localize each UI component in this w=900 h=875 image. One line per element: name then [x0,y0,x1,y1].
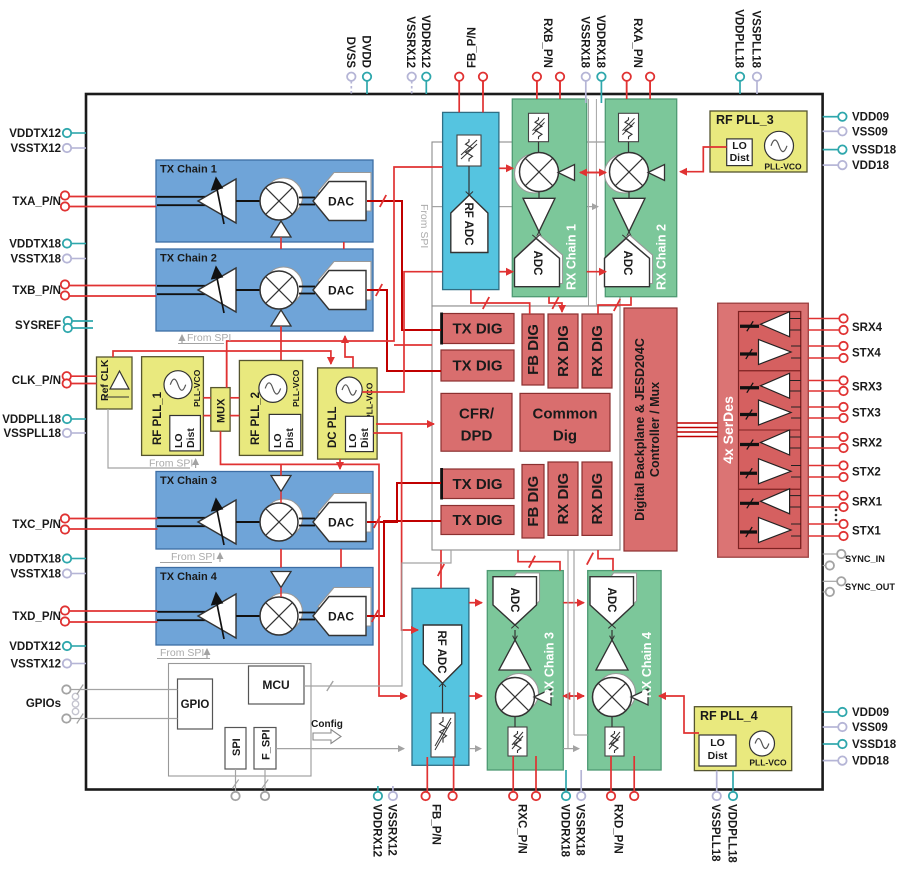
svg-text:SRX1: SRX1 [852,497,883,509]
svg-text:TX DIG: TX DIG [452,476,502,493]
svg-text:SYNC_OUT: SYNC_OUT [845,582,895,592]
svg-text:VDDTX18: VDDTX18 [9,554,61,566]
svg-text:DAC: DAC [328,284,354,298]
svg-text:TX Chain 4: TX Chain 4 [160,571,218,583]
svg-text:VDD18: VDD18 [852,756,890,768]
svg-text:PLL-VCO: PLL-VCO [749,758,787,768]
svg-text:STX4: STX4 [852,348,881,360]
svg-text:RX Chain 2: RX Chain 2 [655,224,669,290]
svg-text:RX DIG: RX DIG [555,473,572,525]
svg-text:MCU: MCU [262,678,289,692]
svg-text:LO: LO [173,433,185,448]
svg-text:PLL-VCO: PLL-VCO [764,162,802,172]
svg-text:SPI: SPI [231,738,243,756]
svg-text:4x SerDes: 4x SerDes [720,396,736,464]
svg-text:RX DIG: RX DIG [589,473,606,525]
svg-text:DVSS: DVSS [344,37,356,69]
svg-text:ADC: ADC [605,588,617,613]
svg-text:PLL-VCO: PLL-VCO [291,369,301,407]
svg-text:RXB_P/N: RXB_P/N [541,18,553,68]
svg-text:FB_P/N: FB_P/N [430,804,442,845]
svg-text:ADC: ADC [621,251,633,276]
svg-text:RF ADC: RF ADC [462,202,474,245]
svg-text:GPIOs: GPIOs [26,698,61,710]
svg-text:RX Chain 3: RX Chain 3 [542,632,556,698]
svg-text:VSSRX12: VSSRX12 [385,804,397,856]
svg-text:CFR/: CFR/ [459,405,495,422]
svg-text:RF ADC: RF ADC [435,630,447,673]
svg-text:VSSRX18: VSSRX18 [578,16,590,68]
svg-text:VSSTX12: VSSTX12 [11,143,62,155]
svg-text:RF PLL_4: RF PLL_4 [700,709,758,723]
svg-text:TX DIG: TX DIG [452,321,502,338]
svg-text:From SPI: From SPI [149,458,193,470]
svg-text:TXB_P/N: TXB_P/N [12,285,61,297]
svg-text:PLL-VCO: PLL-VCO [365,382,375,420]
svg-text:VDDPLL18: VDDPLL18 [726,804,738,863]
svg-text:VSSTX18: VSSTX18 [11,254,62,266]
svg-text:ADC: ADC [531,251,543,276]
svg-text:SRX3: SRX3 [852,382,882,394]
svg-text:TX Chain 3: TX Chain 3 [160,475,217,487]
svg-text:MUX: MUX [216,398,228,423]
svg-text:DPD: DPD [461,427,493,444]
svg-text:TXC_P/N: TXC_P/N [12,519,61,531]
svg-text:STX1: STX1 [852,526,881,538]
svg-text:RF PLL_3: RF PLL_3 [716,113,774,127]
svg-text:VSSRX12: VSSRX12 [404,16,416,68]
svg-text:Common: Common [533,405,598,422]
svg-text:VDDTX12: VDDTX12 [9,641,61,653]
svg-text:VSSTX18: VSSTX18 [11,569,62,581]
svg-text:LO: LO [347,433,359,448]
svg-text:From SPI: From SPI [418,204,430,248]
svg-text:Dist: Dist [359,428,371,448]
svg-text:VSS09: VSS09 [852,722,888,734]
svg-text:Digital Backplane & JESD204C: Digital Backplane & JESD204C [633,338,647,521]
svg-text:F_SPI: F_SPI [261,729,273,760]
svg-text:Ref CLK: Ref CLK [99,359,111,401]
svg-text:VDDPLL18: VDDPLL18 [2,414,61,426]
svg-text:DVDD: DVDD [360,35,372,68]
svg-text:VSSPLL18: VSSPLL18 [750,10,762,68]
svg-text:LO: LO [710,737,725,749]
svg-text:VSSPLL18: VSSPLL18 [709,804,721,862]
svg-text:SYSREF: SYSREF [15,320,61,332]
svg-text:VDDTX12: VDDTX12 [9,128,61,140]
svg-text:DC PLL: DC PLL [327,406,339,448]
svg-text:CLK_P/N: CLK_P/N [12,375,61,387]
svg-text:DAC: DAC [328,516,354,530]
svg-text:TXA_P/N: TXA_P/N [12,196,61,208]
svg-text:Dist: Dist [708,750,728,762]
svg-text:DAC: DAC [328,610,354,624]
svg-text:TX DIG: TX DIG [452,512,502,529]
svg-text:RXA_P/N: RXA_P/N [631,18,643,68]
svg-text:TXD_P/N: TXD_P/N [12,611,61,623]
svg-text:STX2: STX2 [852,467,881,479]
svg-text:VDD09: VDD09 [852,112,889,124]
svg-text:TX Chain 1: TX Chain 1 [160,164,217,176]
svg-text:VDDRX12: VDDRX12 [419,15,431,68]
svg-text:Config: Config [311,719,343,730]
svg-text:GPIO: GPIO [181,699,210,711]
svg-text:STX3: STX3 [852,408,881,420]
svg-text:VDDTX18: VDDTX18 [9,239,61,251]
svg-text:TX Chain 2: TX Chain 2 [160,253,217,265]
svg-text:RX Chain 1: RX Chain 1 [565,224,579,290]
svg-text:DAC: DAC [328,195,354,209]
svg-text:TX DIG: TX DIG [452,358,502,375]
svg-text:VSSTX12: VSSTX12 [11,659,62,671]
svg-text:VDDRX18: VDDRX18 [559,804,571,858]
svg-text:Dig: Dig [553,427,577,444]
svg-text:FB_P/N: FB_P/N [467,27,479,68]
svg-text:VDDRX12: VDDRX12 [370,804,382,857]
svg-text:Controller / Mux: Controller / Mux [648,382,662,477]
svg-text:PLL-VCO: PLL-VCO [192,369,202,407]
svg-text:LO: LO [272,433,284,448]
svg-text:RX Chain 4: RX Chain 4 [640,632,654,698]
svg-text:Dist: Dist [730,152,750,164]
svg-text:Dist: Dist [185,428,197,448]
svg-text:ADC: ADC [508,588,520,613]
svg-text:VSSPLL18: VSSPLL18 [3,428,61,440]
svg-text:FB DIG: FB DIG [525,476,542,527]
svg-text:From SPI: From SPI [160,647,204,659]
svg-text:SYNC_IN: SYNC_IN [845,554,885,564]
svg-text:RXD_P/N: RXD_P/N [612,804,624,854]
svg-text:VDD09: VDD09 [852,707,889,719]
svg-text:LO: LO [732,140,747,152]
svg-text:SRX2: SRX2 [852,438,882,450]
svg-text:From SPI: From SPI [187,332,231,344]
svg-text:VDDPLL18: VDDPLL18 [733,9,745,68]
svg-text:VSSD18: VSSD18 [852,145,897,157]
svg-text:VSS09: VSS09 [852,126,888,138]
svg-text:RF PLL_1: RF PLL_1 [152,391,164,445]
svg-text:VDDRX18: VDDRX18 [594,15,606,69]
svg-text:VDD18: VDD18 [852,160,890,172]
svg-text:From SPI: From SPI [171,551,215,563]
svg-text:VSSD18: VSSD18 [852,739,897,751]
svg-text:RX DIG: RX DIG [555,325,572,377]
svg-text:FB DIG: FB DIG [525,324,542,375]
svg-text:RXC_P/N: RXC_P/N [516,804,528,854]
svg-text:SRX4: SRX4 [852,322,883,334]
svg-text:RF PLL_2: RF PLL_2 [250,392,262,445]
svg-text:RX DIG: RX DIG [589,325,606,377]
svg-text:VSSRX18: VSSRX18 [574,804,586,856]
svg-text:Dist: Dist [284,428,296,448]
